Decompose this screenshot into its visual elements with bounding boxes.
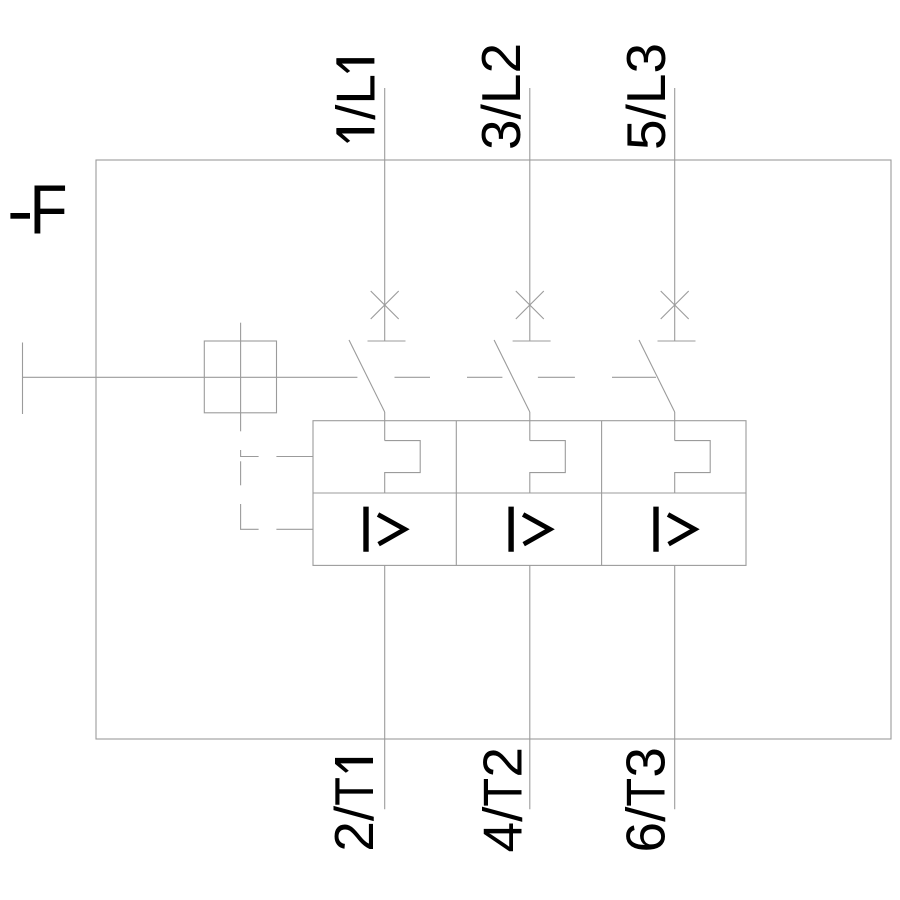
svg-text:F: F xyxy=(29,171,67,249)
svg-text:5/L3: 5/L3 xyxy=(615,43,677,150)
svg-text:2: 2 xyxy=(472,747,534,778)
svg-text:4/: 4/ xyxy=(472,806,534,853)
svg-text:2/: 2/ xyxy=(323,805,385,852)
svg-text:T: T xyxy=(615,778,677,807)
svg-text:T: T xyxy=(323,777,385,806)
svg-text:/L: /L xyxy=(324,74,386,120)
svg-text:3/L2: 3/L2 xyxy=(470,43,532,150)
svg-text:6/: 6/ xyxy=(615,806,677,853)
svg-text:3: 3 xyxy=(615,747,677,778)
svg-text:T: T xyxy=(472,778,534,807)
